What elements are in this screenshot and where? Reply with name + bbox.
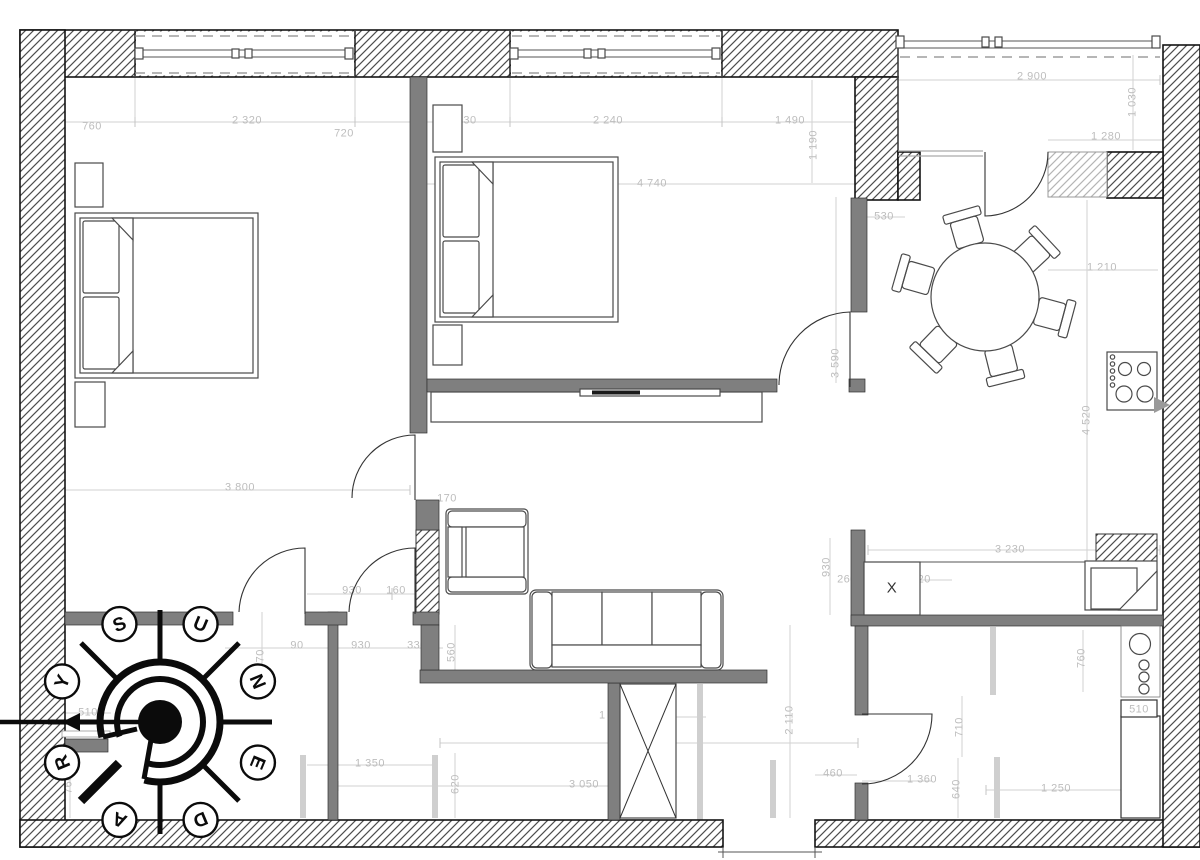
dimension-label: 710 — [954, 717, 966, 737]
dimension-label: 460 — [823, 768, 843, 780]
bed-1 — [75, 163, 258, 427]
floor-plan-drawing: 7602 320720302 2401 4901 1904 7405302 90… — [0, 0, 1200, 860]
sofa — [530, 590, 723, 670]
dimension-label: 170 — [437, 493, 457, 505]
dimension-label: 3 050 — [569, 779, 599, 791]
dining-set — [891, 205, 1076, 387]
cooktop — [1107, 352, 1157, 410]
dimension-label: 4 520 — [1081, 405, 1093, 435]
nightstand — [75, 163, 103, 207]
floor-plan-canvas: 7602 320720302 2401 4901 1904 7405302 90… — [0, 0, 1200, 860]
dimension-label: X — [887, 580, 898, 597]
dimension-label: 3 230 — [995, 544, 1025, 556]
compass-center-dot — [138, 700, 182, 744]
dimension-label: 2 900 — [1017, 71, 1047, 83]
nightstand — [433, 325, 462, 365]
nightstand — [75, 382, 105, 427]
round-table — [931, 243, 1039, 351]
door-hall — [349, 548, 415, 614]
dimension-label: 2 110 — [784, 705, 796, 734]
door-balcony — [985, 152, 1048, 216]
dimension-label: 1 250 — [1041, 783, 1071, 795]
dimension-label: 1 210 — [1087, 262, 1117, 274]
dimension-label: 1 280 — [1091, 131, 1121, 143]
dimension-label: 1 190 — [808, 130, 820, 160]
door-room-sw — [239, 548, 305, 614]
nightstand — [433, 105, 462, 152]
dimension-label: 3 590 — [830, 348, 842, 378]
kitchen-counter — [864, 561, 1157, 615]
dimension-label: 1 490 — [775, 115, 805, 127]
dimension-label: 620 — [450, 774, 462, 794]
tv — [592, 391, 640, 395]
entry-threshold — [718, 847, 822, 858]
dimension-label: 2 320 — [232, 115, 262, 127]
dimension-label: 720 — [334, 128, 354, 140]
dimension-label: 930 — [821, 557, 833, 577]
dimension-label: 3 800 — [225, 482, 255, 494]
dimension-label: 1 360 — [907, 774, 937, 786]
armchair — [446, 509, 528, 594]
dimension-label: 760 — [1076, 648, 1088, 668]
tv-console — [431, 389, 762, 422]
dimension-label: 560 — [446, 642, 458, 662]
windows — [135, 31, 1160, 156]
dimension-label: 640 — [951, 779, 963, 799]
dimension-label: 160 — [386, 585, 406, 597]
hall-column-hatch — [416, 530, 439, 614]
duct-niche — [1121, 716, 1160, 818]
dimension-label: 510 — [1129, 704, 1149, 716]
bathroom-fixtures — [1121, 626, 1160, 818]
dimension-label: 4 740 — [637, 178, 667, 190]
chair — [891, 253, 936, 299]
dimension-label: 930 — [351, 640, 371, 652]
dimension-label: 510 — [78, 707, 98, 719]
dimension-label: 760 — [82, 121, 102, 133]
dimension-label: 90 — [290, 640, 303, 652]
vent-shaft — [620, 684, 676, 818]
dimension-label: 1 030 — [1127, 87, 1139, 117]
dimension-label: 30 — [463, 115, 476, 127]
dimension-label: 2 240 — [593, 115, 623, 127]
dimension-label: 1 350 — [355, 758, 385, 770]
bed-2 — [433, 105, 618, 365]
dimension-label: 530 — [874, 211, 894, 223]
window-opening — [511, 32, 721, 76]
